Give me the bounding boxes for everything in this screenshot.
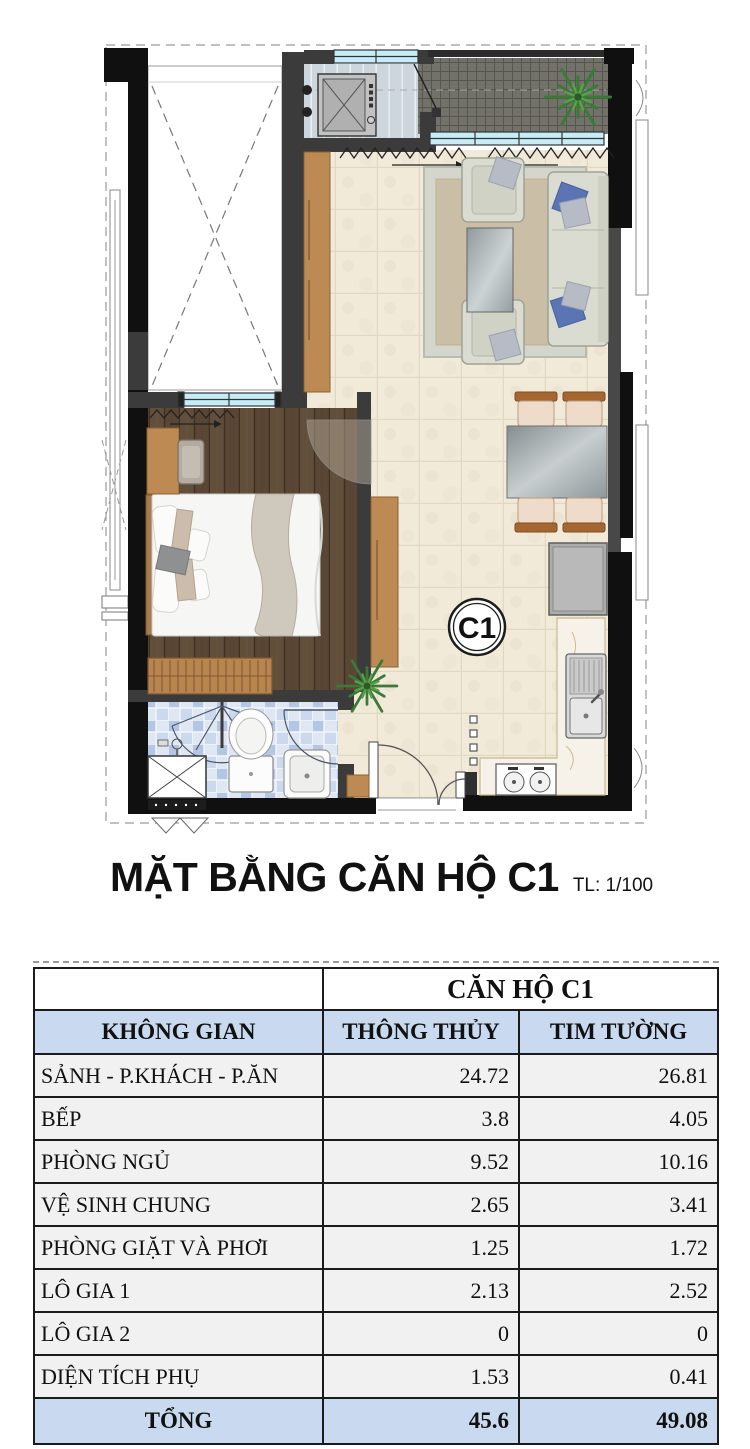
- void-area: [148, 66, 282, 390]
- shoe-cabinet: [347, 775, 369, 797]
- dining-chair: [515, 392, 557, 426]
- table-top-dashed-line: [33, 961, 719, 963]
- toilet: [229, 709, 273, 792]
- dining-chair: [563, 498, 605, 532]
- fridge: [549, 543, 607, 615]
- table-row: VỆ SINH CHUNG 2.65 3.41: [34, 1183, 718, 1226]
- hook-icon: [302, 85, 312, 95]
- bedroom-window: [178, 392, 281, 407]
- plan-title: MẶT BẰNG CĂN HỘ C1 TL: 1/100: [110, 854, 653, 901]
- table-row: PHÒNG GIẶT VÀ PHƠI 1.25 1.72: [34, 1226, 718, 1269]
- room-label: DIỆN TÍCH PHỤ: [34, 1355, 323, 1398]
- table-row: LÔ GIA 1 2.13 2.52: [34, 1269, 718, 1312]
- dining-chair: [563, 392, 605, 426]
- room-label: LÔ GIA 2: [34, 1312, 323, 1355]
- tv-cabinet: [304, 152, 330, 392]
- total-value: 45.6: [323, 1398, 519, 1444]
- area-value: 2.52: [519, 1269, 718, 1312]
- area-value: 3.41: [519, 1183, 718, 1226]
- unit-badge: C1: [449, 599, 505, 655]
- sofa: [548, 172, 608, 346]
- area-value: 24.72: [323, 1054, 519, 1097]
- balcony-railing-window: [430, 132, 604, 145]
- blank-cell: [34, 968, 323, 1010]
- stove: [496, 764, 556, 795]
- bed: [152, 494, 322, 636]
- column-header: KHÔNG GIAN: [34, 1010, 323, 1054]
- room-label: LÔ GIA 1: [34, 1269, 323, 1312]
- laundry-window: [334, 50, 418, 63]
- area-value: 1.53: [323, 1355, 519, 1398]
- room-label: BẾP: [34, 1097, 323, 1140]
- area-value: 0.41: [519, 1355, 718, 1398]
- table-row: BẾP 3.8 4.05: [34, 1097, 718, 1140]
- area-value: 4.05: [519, 1097, 718, 1140]
- console-cabinet: [371, 497, 398, 667]
- total-value: 49.08: [519, 1398, 718, 1444]
- bench: [148, 658, 272, 694]
- floor-plan: C1: [96, 40, 656, 840]
- plan-scale-text: TL: 1/100: [573, 875, 653, 897]
- washing-machine: [318, 74, 376, 136]
- armchair: [462, 157, 524, 222]
- area-value: 26.81: [519, 1054, 718, 1097]
- unit-badge-label: C1: [458, 612, 496, 645]
- area-value: 9.52: [323, 1140, 519, 1183]
- desk: [147, 428, 179, 494]
- table-row: LÔ GIA 2 0 0: [34, 1312, 718, 1355]
- area-value: 0: [323, 1312, 519, 1355]
- dining-table: [507, 426, 607, 498]
- table-row: PHÒNG NGỦ 9.52 10.16: [34, 1140, 718, 1183]
- area-value: 2.13: [323, 1269, 519, 1312]
- unit-header-cell: CĂN HỘ C1: [323, 968, 718, 1010]
- floorplan-page: C1 MẶT BẰNG CĂN HỘ C1 TL: 1/100 CĂN HỘ C…: [0, 0, 750, 1449]
- table-header-row: KHÔNG GIAN THÔNG THỦY TIM TƯỜNG: [34, 1010, 718, 1054]
- room-label: PHÒNG GIẶT VÀ PHƠI: [34, 1226, 323, 1269]
- desk-chair: [178, 440, 204, 484]
- laundry-basin: [284, 750, 330, 798]
- area-value: 2.65: [323, 1183, 519, 1226]
- dining-chair: [515, 498, 557, 532]
- table-row: DIỆN TÍCH PHỤ 1.53 0.41: [34, 1355, 718, 1398]
- table-row: SẢNH - P.KHÁCH - P.ĂN 24.72 26.81: [34, 1054, 718, 1097]
- plan-title-text: MẶT BẰNG CĂN HỘ C1: [110, 854, 559, 901]
- area-value: 10.16: [519, 1140, 718, 1183]
- area-value: 1.72: [519, 1226, 718, 1269]
- area-value: 1.25: [323, 1226, 519, 1269]
- hook-icon: [302, 107, 312, 117]
- table-row: CĂN HỘ C1: [34, 968, 718, 1010]
- area-value: 3.8: [323, 1097, 519, 1140]
- room-label: VỆ SINH CHUNG: [34, 1183, 323, 1226]
- kitchen-sink: [566, 654, 606, 738]
- area-table: CĂN HỘ C1 KHÔNG GIAN THÔNG THỦY TIM TƯỜN…: [33, 967, 719, 1445]
- room-label: PHÒNG NGỦ: [34, 1140, 323, 1183]
- column-header: THÔNG THỦY: [323, 1010, 519, 1054]
- area-value: 0: [519, 1312, 718, 1355]
- coffee-table: [467, 228, 513, 312]
- column-header: TIM TƯỜNG: [519, 1010, 718, 1054]
- total-label: TỔNG: [34, 1398, 323, 1444]
- table-total-row: TỔNG 45.6 49.08: [34, 1398, 718, 1444]
- room-label: SẢNH - P.KHÁCH - P.ĂN: [34, 1054, 323, 1097]
